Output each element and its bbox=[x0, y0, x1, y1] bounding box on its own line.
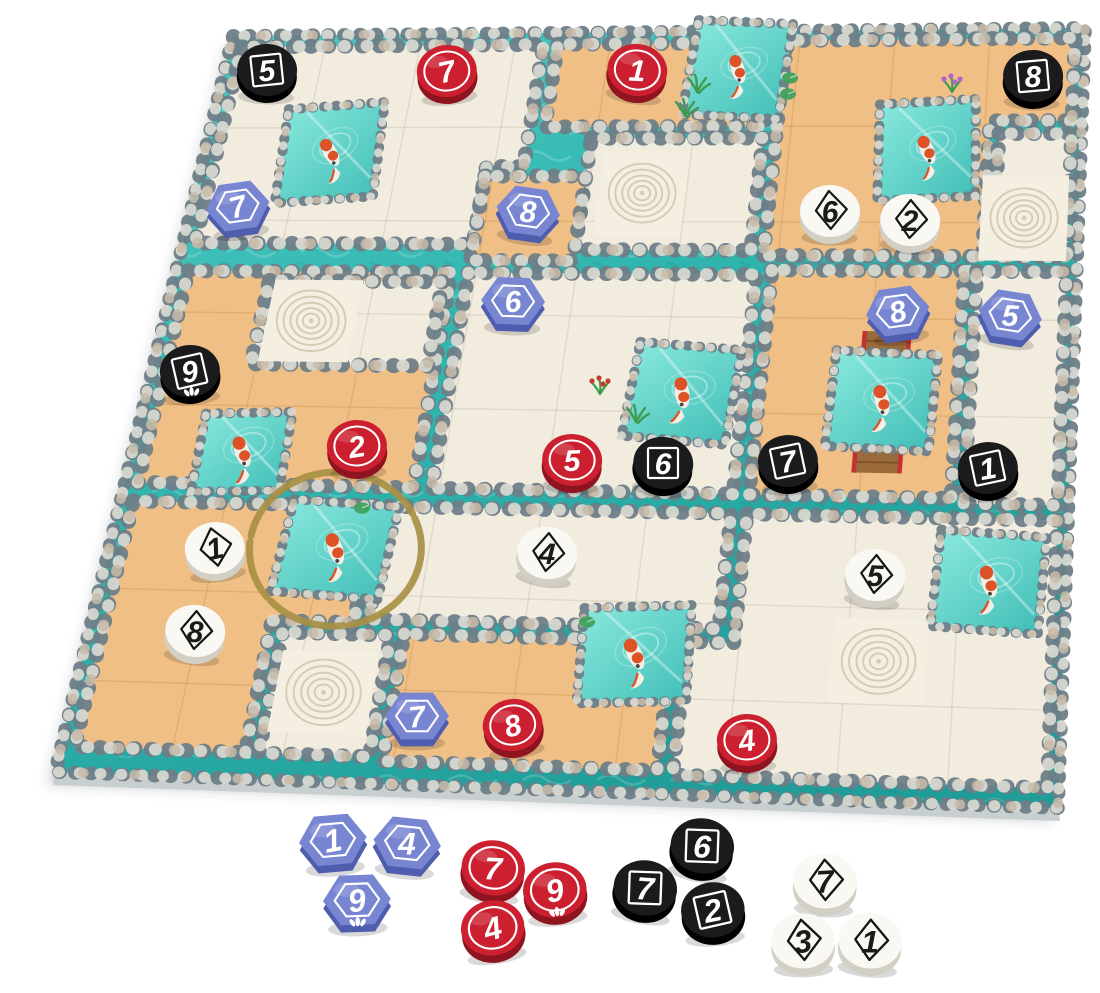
svg-text:6: 6 bbox=[692, 828, 712, 865]
svg-text:8: 8 bbox=[186, 616, 204, 650]
zen-garden-tile bbox=[978, 175, 1069, 261]
koi-pond-tile[interactable] bbox=[188, 411, 295, 494]
zen-garden-tile bbox=[593, 151, 691, 235]
svg-text:1: 1 bbox=[628, 55, 646, 89]
koi-pond-tile[interactable] bbox=[268, 102, 391, 203]
pad-decor bbox=[354, 502, 370, 513]
koi-pond-tile[interactable] bbox=[930, 529, 1047, 634]
svg-text:4: 4 bbox=[397, 826, 416, 862]
svg-text:2: 2 bbox=[901, 205, 919, 238]
svg-text:8: 8 bbox=[519, 196, 537, 230]
svg-text:4: 4 bbox=[537, 538, 557, 572]
token-red-4-tray[interactable]: 4 bbox=[457, 896, 530, 969]
token-red-9-tray[interactable]: 9 bbox=[520, 859, 590, 929]
koi-pond-tile[interactable] bbox=[872, 99, 981, 201]
svg-text:7: 7 bbox=[483, 850, 504, 887]
zen-garden-tile bbox=[828, 618, 930, 706]
pad-decor bbox=[782, 72, 798, 83]
scene: 571878626859256711458784149794672731 bbox=[0, 0, 1100, 993]
koi-pond-tile[interactable] bbox=[825, 350, 938, 452]
pad-decor bbox=[780, 88, 796, 99]
svg-text:1: 1 bbox=[861, 924, 879, 960]
svg-text:6: 6 bbox=[820, 195, 840, 229]
svg-text:5: 5 bbox=[563, 445, 582, 479]
token-black-2-tray[interactable]: 2 bbox=[679, 880, 748, 949]
svg-text:5: 5 bbox=[1001, 300, 1021, 334]
svg-text:8: 8 bbox=[1024, 61, 1043, 95]
zen-garden-tile bbox=[267, 650, 379, 735]
svg-text:6: 6 bbox=[503, 285, 522, 319]
svg-text:7: 7 bbox=[815, 863, 836, 900]
token-blue-4-tray[interactable]: 4 bbox=[370, 815, 444, 883]
token-tray: 149794672731 bbox=[297, 812, 905, 980]
token-white-7-tray[interactable]: 7 bbox=[791, 852, 858, 919]
pad-decor bbox=[579, 616, 595, 627]
token-black-5-board[interactable]: 5 bbox=[236, 43, 298, 106]
koi-pond-tile[interactable] bbox=[621, 341, 741, 445]
token-white-3-tray[interactable]: 3 bbox=[771, 913, 836, 978]
token-blue-1-tray[interactable]: 1 bbox=[297, 812, 370, 879]
koi-pond-tile[interactable] bbox=[682, 18, 793, 119]
koi-garden-board: 571878626859256711458784149794672731 bbox=[0, 0, 1100, 993]
svg-text:6: 6 bbox=[654, 448, 672, 482]
svg-text:5: 5 bbox=[866, 560, 885, 594]
zen-garden-tile bbox=[258, 280, 364, 363]
token-red-7-tray[interactable]: 7 bbox=[456, 836, 529, 909]
token-white-6-board[interactable]: 6 bbox=[799, 184, 860, 246]
token-blue-9-tray[interactable]: 9 bbox=[322, 874, 392, 938]
token-white-1-tray[interactable]: 1 bbox=[835, 910, 905, 980]
token-black-7-tray[interactable]: 7 bbox=[608, 855, 682, 929]
token-black-6-tray[interactable]: 6 bbox=[665, 813, 739, 887]
